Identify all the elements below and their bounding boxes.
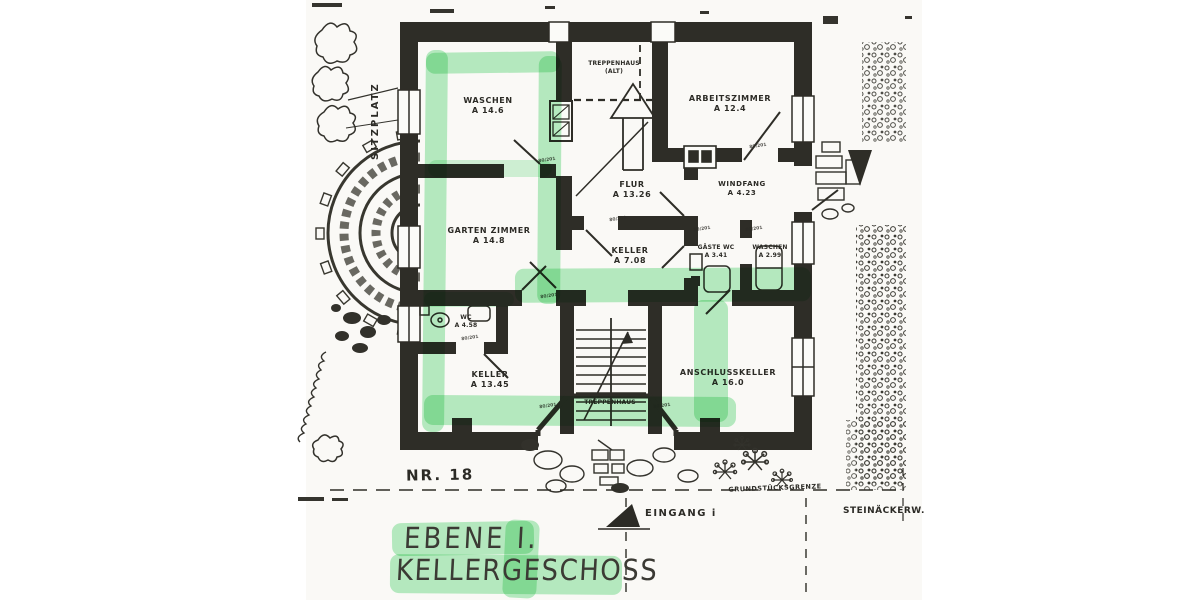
terrace-label: SITZPLATZ — [370, 82, 381, 160]
plan-title-line2: KELLERGESCHOSS — [395, 554, 659, 588]
bush-blobs-patio — [331, 304, 391, 353]
gravel-strip-right — [846, 42, 906, 490]
stairs-icon — [576, 318, 646, 426]
room-label-waschen-klein: WASCHENA 2.99 — [752, 244, 787, 260]
chimney-icon — [550, 101, 572, 141]
room-label-treppenhaus: TREPPENHAUS — [584, 399, 636, 407]
room-label-gartenzimmer: GARTEN ZIMMERA 14.8 — [447, 226, 530, 247]
room-label-flur: FLURA 13.26 — [613, 180, 651, 201]
street-label: STEINÄCKERW. — [843, 506, 925, 516]
entrance-label: EINGANG i — [645, 508, 717, 519]
entrance-arrow-icon — [598, 504, 650, 529]
plan-title-line1: EBENE I. — [403, 522, 540, 556]
scanned-floorplan-page: WASCHENA 14.6 TREPPENHAUS(ALT) ARBEITSZI… — [0, 0, 1200, 600]
room-label-waschen-og: WASCHENA 14.6 — [463, 96, 512, 117]
room-label-keller-gross: KELLERA 13.45 — [471, 370, 509, 391]
room-label-wc: WCA 4.58 — [455, 314, 478, 330]
scan-artifacts — [298, 3, 912, 501]
windows — [398, 22, 814, 396]
room-label-anschlusskeller: ANSCHLUSSKELLERA 16.0 — [680, 368, 776, 389]
bush-sketch-left — [312, 23, 398, 461]
entrance-steps-right — [816, 142, 872, 219]
room-label-treppenhaus-alt: TREPPENHAUS(ALT) — [588, 60, 640, 76]
house-number-label: NR. 18 — [406, 465, 474, 484]
room-label-windfang: WINDFANGA 4.23 — [718, 180, 766, 198]
rock-garden-bottom — [521, 439, 698, 493]
electrical-panel-icon — [684, 146, 716, 168]
floorplan-drawing — [0, 0, 1200, 600]
room-label-gaeste-wc: GÄSTE WCA 3.41 — [698, 244, 735, 260]
room-label-arbeitszimmer: ARBEITSZIMMERA 12.4 — [689, 94, 771, 115]
handwritten-scribble — [298, 352, 326, 442]
room-label-keller-mitte: KELLERA 7.08 — [611, 246, 648, 267]
